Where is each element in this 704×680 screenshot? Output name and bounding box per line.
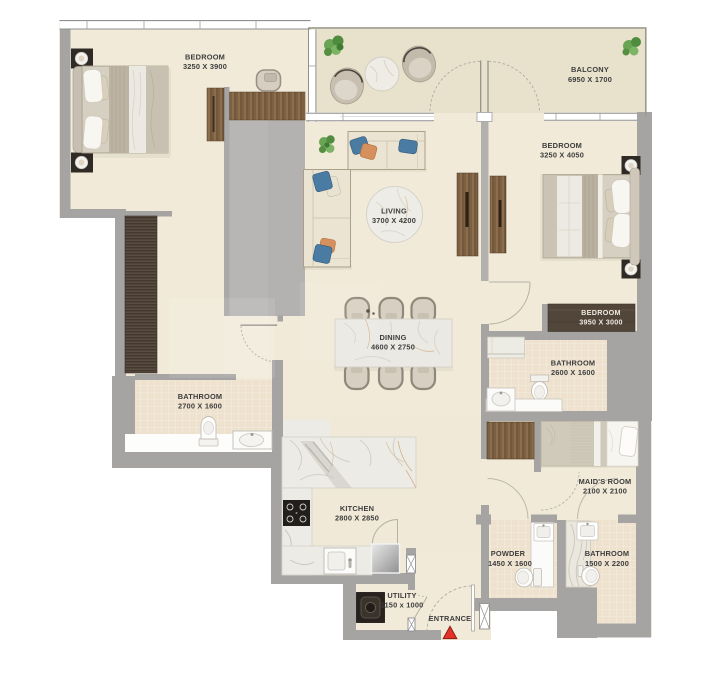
- svg-text:3250 X 3900: 3250 X 3900: [183, 62, 227, 71]
- svg-text:1450 X 1600: 1450 X 1600: [488, 559, 532, 568]
- svg-text:KITCHEN: KITCHEN: [340, 504, 374, 513]
- svg-text:BATHROOM: BATHROOM: [178, 392, 223, 401]
- svg-text:4600 X 2750: 4600 X 2750: [371, 343, 415, 352]
- svg-text:2700 X 1600: 2700 X 1600: [178, 402, 222, 411]
- svg-text:2600 X 1600: 2600 X 1600: [551, 368, 595, 377]
- svg-text:POWDER: POWDER: [491, 549, 526, 558]
- svg-text:UTILITY: UTILITY: [387, 591, 416, 600]
- svg-text:BEDROOM: BEDROOM: [185, 53, 225, 62]
- svg-text:ENTRANCE: ENTRANCE: [429, 614, 472, 623]
- svg-text:BEDROOM: BEDROOM: [581, 308, 621, 317]
- svg-text:MAID'S ROOM: MAID'S ROOM: [579, 477, 632, 486]
- svg-text:BALCONY: BALCONY: [571, 65, 609, 74]
- svg-text:6950 X 1700: 6950 X 1700: [568, 75, 612, 84]
- svg-text:2100 X 2100: 2100 X 2100: [583, 487, 627, 496]
- svg-text:LIVING: LIVING: [381, 207, 407, 216]
- svg-text:BATHROOM: BATHROOM: [551, 359, 596, 368]
- svg-text:3950 X 3000: 3950 X 3000: [579, 318, 623, 327]
- svg-text:3700 X 4200: 3700 X 4200: [372, 216, 416, 225]
- svg-text:BEDROOM: BEDROOM: [542, 141, 582, 150]
- svg-text:1150 x 1000: 1150 x 1000: [381, 601, 424, 610]
- svg-text:DINING: DINING: [379, 333, 406, 342]
- svg-text:3250 X 4050: 3250 X 4050: [540, 151, 584, 160]
- svg-text:BATHROOM: BATHROOM: [585, 549, 630, 558]
- svg-text:1500 X 2200: 1500 X 2200: [585, 559, 629, 568]
- svg-text:2800 X 2850: 2800 X 2850: [335, 514, 379, 523]
